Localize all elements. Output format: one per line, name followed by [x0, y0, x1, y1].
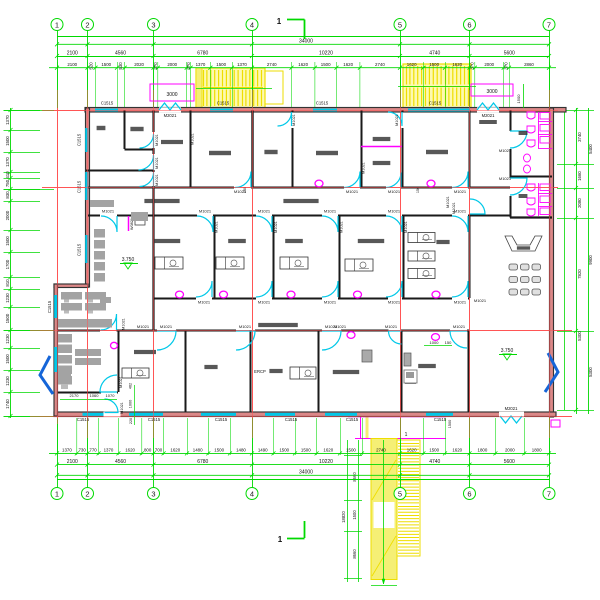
- svg-text:2: 2: [85, 489, 89, 498]
- svg-text:M2021: M2021: [482, 113, 495, 118]
- svg-text:5600: 5600: [504, 50, 515, 56]
- svg-text:C1515: C1515: [101, 101, 114, 106]
- svg-text:2100: 2100: [67, 459, 78, 465]
- svg-text:M1021: M1021: [499, 148, 512, 153]
- svg-text:3000: 3000: [166, 92, 177, 98]
- svg-text:800: 800: [144, 448, 152, 453]
- svg-text:1500: 1500: [101, 62, 111, 67]
- svg-text:C1515: C1515: [47, 300, 52, 313]
- svg-text:1500: 1500: [301, 448, 311, 453]
- svg-text:1: 1: [55, 20, 59, 29]
- svg-text:4: 4: [250, 20, 254, 29]
- svg-text:530: 530: [118, 62, 123, 70]
- svg-text:700: 700: [155, 448, 163, 453]
- svg-text:5600: 5600: [504, 459, 515, 465]
- svg-text:M1021: M1021: [385, 324, 398, 329]
- svg-text:C1515: C1515: [429, 101, 442, 106]
- svg-text:C1515: C1515: [215, 417, 228, 422]
- svg-text:1480: 1480: [193, 448, 203, 453]
- svg-text:3: 3: [151, 489, 155, 498]
- svg-text:M1021: M1021: [239, 324, 252, 329]
- svg-text:520: 520: [89, 62, 94, 70]
- svg-text:1500: 1500: [216, 62, 226, 67]
- svg-text:M1021: M1021: [274, 221, 278, 233]
- svg-text:M1021: M1021: [362, 162, 366, 174]
- svg-text:1800: 1800: [478, 448, 488, 453]
- svg-text:2080: 2080: [577, 198, 582, 208]
- svg-text:1620: 1620: [125, 448, 135, 453]
- svg-text:C1515: C1515: [285, 417, 298, 422]
- svg-text:34000: 34000: [299, 39, 313, 45]
- svg-text:M1021: M1021: [340, 221, 344, 233]
- svg-text:2020: 2020: [134, 62, 144, 67]
- svg-text:1370: 1370: [5, 115, 10, 125]
- svg-text:1620: 1620: [323, 448, 333, 453]
- svg-text:410: 410: [5, 171, 10, 179]
- svg-text:M1021: M1021: [454, 209, 467, 214]
- svg-text:M1021: M1021: [122, 318, 126, 330]
- svg-text:7: 7: [547, 489, 551, 498]
- svg-text:1500: 1500: [346, 448, 356, 453]
- svg-text:1370: 1370: [5, 157, 10, 167]
- svg-text:1500: 1500: [352, 510, 357, 520]
- svg-text:34000: 34000: [299, 470, 313, 476]
- svg-text:1620: 1620: [452, 448, 462, 453]
- svg-text:M1021: M1021: [388, 209, 401, 214]
- svg-text:4560: 4560: [115, 459, 126, 465]
- svg-text:M1021: M1021: [346, 189, 359, 194]
- svg-text:M1021: M1021: [215, 221, 219, 233]
- svg-text:1500: 1500: [279, 448, 289, 453]
- svg-text:830: 830: [5, 191, 10, 199]
- svg-text:M1021: M1021: [388, 300, 401, 305]
- svg-text:3.750: 3.750: [501, 348, 514, 354]
- svg-text:6780: 6780: [197, 459, 208, 465]
- svg-text:M1021: M1021: [137, 324, 150, 329]
- svg-text:1500: 1500: [321, 62, 331, 67]
- svg-text:10220: 10220: [319, 50, 333, 56]
- svg-text:150: 150: [445, 340, 452, 345]
- svg-text:M1021: M1021: [155, 157, 159, 169]
- svg-text:5300: 5300: [577, 331, 582, 341]
- svg-text:1500: 1500: [5, 136, 10, 146]
- svg-text:1500: 1500: [448, 420, 452, 428]
- svg-text:M1021: M1021: [199, 209, 212, 214]
- svg-text:M1021: M1021: [454, 300, 467, 305]
- svg-text:M1021: M1021: [324, 209, 337, 214]
- svg-text:1500: 1500: [429, 448, 439, 453]
- svg-text:1620: 1620: [343, 62, 353, 67]
- svg-text:C1515: C1515: [316, 101, 329, 106]
- svg-text:2100: 2100: [67, 50, 78, 56]
- svg-text:1: 1: [55, 489, 59, 498]
- svg-text:1370: 1370: [104, 448, 114, 453]
- svg-text:M1021: M1021: [155, 134, 159, 146]
- svg-text:5400: 5400: [588, 144, 593, 154]
- svg-text:1700: 1700: [5, 259, 10, 269]
- svg-text:2170: 2170: [70, 393, 80, 398]
- svg-text:4: 4: [250, 489, 254, 498]
- svg-text:1000: 1000: [430, 340, 440, 345]
- svg-text:1490: 1490: [258, 448, 268, 453]
- svg-text:M1021: M1021: [160, 324, 173, 329]
- svg-text:1660: 1660: [577, 171, 582, 181]
- svg-text:2000: 2000: [5, 210, 10, 220]
- svg-text:1060: 1060: [90, 393, 100, 398]
- svg-text:M1021: M1021: [404, 221, 408, 233]
- svg-text:1620: 1620: [407, 62, 417, 67]
- svg-text:M1021: M1021: [198, 300, 211, 305]
- svg-text:7: 7: [547, 20, 551, 29]
- svg-text:M1021: M1021: [292, 114, 296, 126]
- svg-text:3000: 3000: [486, 89, 497, 95]
- svg-text:M1021: M1021: [395, 114, 399, 126]
- svg-text:1500: 1500: [214, 448, 224, 453]
- svg-text:M1021: M1021: [324, 300, 337, 305]
- svg-text:370: 370: [469, 62, 474, 70]
- svg-text:1800: 1800: [532, 448, 542, 453]
- svg-text:M1021: M1021: [454, 189, 467, 194]
- svg-text:1000: 1000: [129, 400, 133, 408]
- svg-text:1620: 1620: [170, 448, 180, 453]
- svg-text:1370: 1370: [62, 448, 72, 453]
- svg-text:270: 270: [153, 62, 158, 70]
- svg-text:270: 270: [186, 62, 191, 70]
- svg-text:1500: 1500: [5, 354, 10, 364]
- svg-text:18820: 18820: [341, 511, 346, 523]
- svg-text:M1021: M1021: [191, 133, 195, 145]
- svg-text:750: 750: [5, 179, 10, 187]
- svg-text:4740: 4740: [429, 459, 440, 465]
- svg-text:9900: 9900: [588, 255, 593, 265]
- svg-text:C1515: C1515: [77, 180, 82, 193]
- svg-text:C1515: C1515: [217, 101, 230, 106]
- svg-text:M1021: M1021: [102, 209, 115, 214]
- svg-text:2740: 2740: [376, 448, 386, 453]
- svg-text:1500: 1500: [429, 62, 439, 67]
- svg-text:C1515: C1515: [346, 417, 359, 422]
- svg-text:1230: 1230: [5, 376, 10, 386]
- svg-text:M1021: M1021: [120, 402, 124, 414]
- svg-text:3740: 3740: [577, 132, 582, 142]
- svg-text:M2021: M2021: [505, 406, 518, 411]
- svg-text:1230: 1230: [5, 334, 10, 344]
- svg-text:M1021: M1021: [499, 176, 512, 181]
- svg-text:M1021: M1021: [155, 174, 159, 186]
- svg-text:1500: 1500: [5, 313, 10, 323]
- svg-text:810: 810: [5, 279, 10, 287]
- svg-text:1480: 1480: [236, 448, 246, 453]
- svg-text:M1021: M1021: [446, 196, 450, 208]
- svg-text:3.750: 3.750: [122, 257, 135, 263]
- svg-text:M2021: M2021: [164, 113, 177, 118]
- svg-text:C1515: C1515: [77, 243, 82, 256]
- svg-text:370: 370: [504, 62, 509, 70]
- svg-text:730: 730: [78, 448, 86, 453]
- svg-text:7820: 7820: [577, 269, 582, 279]
- svg-text:1500: 1500: [5, 236, 10, 246]
- svg-text:462: 462: [129, 383, 133, 389]
- svg-text:M1021: M1021: [474, 298, 487, 303]
- svg-text:ERCP: ERCP: [254, 369, 266, 374]
- svg-text:1620: 1620: [407, 448, 417, 453]
- svg-text:1500: 1500: [516, 94, 521, 104]
- svg-text:1620: 1620: [298, 62, 308, 67]
- svg-text:1: 1: [277, 17, 282, 26]
- svg-text:8660: 8660: [352, 549, 357, 559]
- svg-text:1070: 1070: [106, 393, 116, 398]
- svg-text:M1021: M1021: [453, 324, 466, 329]
- svg-text:6780: 6780: [197, 50, 208, 56]
- svg-text:1: 1: [278, 535, 283, 544]
- svg-text:6: 6: [467, 20, 471, 29]
- svg-text:3: 3: [151, 20, 155, 29]
- svg-text:2100: 2100: [67, 62, 77, 67]
- svg-text:4560: 4560: [115, 50, 126, 56]
- svg-text:1740: 1740: [5, 399, 10, 409]
- svg-text:2000: 2000: [484, 62, 494, 67]
- svg-text:2: 2: [85, 20, 89, 29]
- svg-text:M1021: M1021: [258, 300, 271, 305]
- svg-text:2000: 2000: [505, 448, 515, 453]
- svg-text:1370: 1370: [237, 62, 247, 67]
- svg-text:C1515: C1515: [434, 417, 447, 422]
- svg-text:770: 770: [89, 448, 97, 453]
- svg-text:2740: 2740: [267, 62, 277, 67]
- svg-text:6: 6: [467, 489, 471, 498]
- svg-text:5: 5: [398, 20, 402, 29]
- svg-text:5: 5: [398, 489, 402, 498]
- svg-text:C1515: C1515: [148, 417, 161, 422]
- svg-text:1620: 1620: [452, 62, 462, 67]
- svg-text:5300: 5300: [588, 367, 593, 377]
- svg-text:M1021: M1021: [388, 189, 401, 194]
- svg-text:4740: 4740: [429, 50, 440, 56]
- svg-text:1230: 1230: [5, 293, 10, 303]
- svg-text:M1021: M1021: [334, 324, 347, 329]
- svg-text:1370: 1370: [196, 62, 206, 67]
- svg-text:1: 1: [405, 432, 408, 438]
- svg-text:220: 220: [129, 418, 133, 424]
- svg-text:10220: 10220: [319, 459, 333, 465]
- svg-text:8660: 8660: [352, 472, 357, 482]
- svg-text:2740: 2740: [375, 62, 385, 67]
- svg-text:2860: 2860: [524, 62, 534, 67]
- svg-text:2000: 2000: [167, 62, 177, 67]
- svg-text:C1515: C1515: [77, 133, 82, 146]
- svg-text:M1021: M1021: [258, 209, 271, 214]
